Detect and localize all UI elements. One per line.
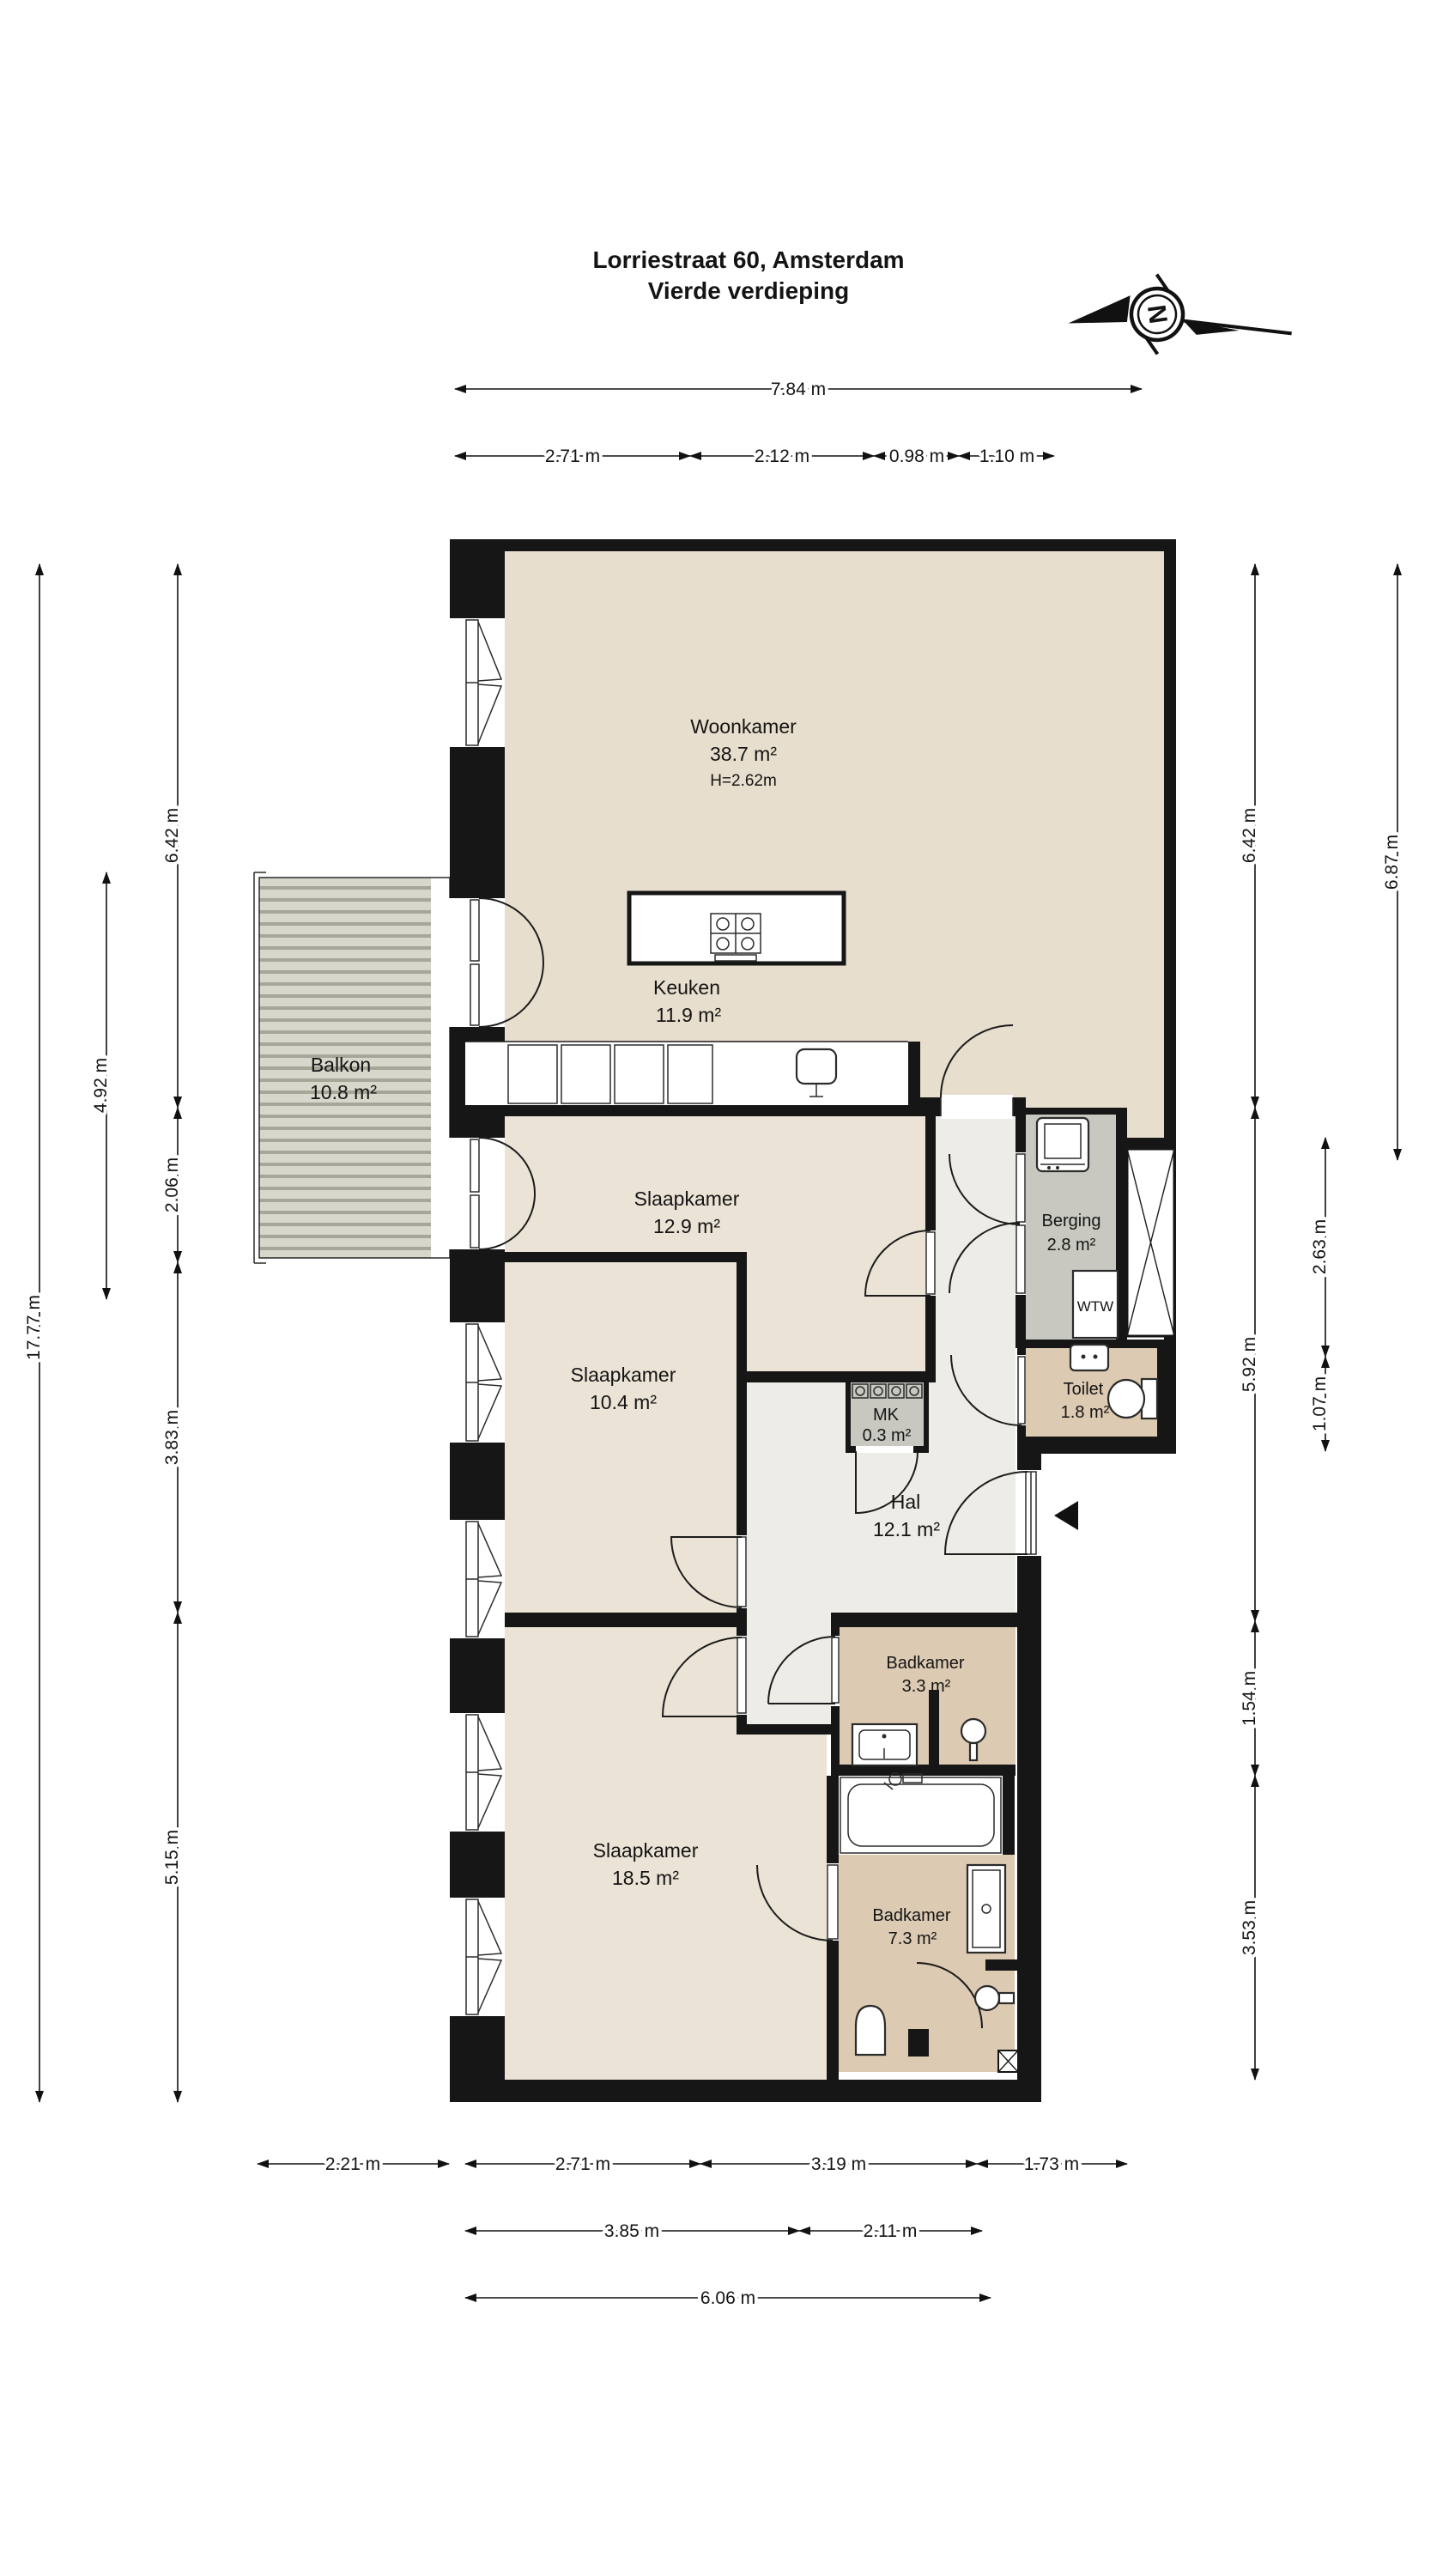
shaft-x-small [998, 2050, 1018, 2072]
dim-right-inner: 2.63 m 1.07 m [1310, 1138, 1330, 1451]
dim-left-balkon: 4.92 m [91, 872, 111, 1299]
room-label-hal: Hal [891, 1491, 921, 1513]
room-woonkamer-floor-east [1116, 551, 1164, 1149]
room-height-woonkamer: H=2.62m [710, 772, 777, 790]
room-label-badkamer2: Badkamer [872, 1906, 950, 1925]
dim-left-total: 17.77 m [24, 564, 44, 2102]
floorplan-page: Lorriestraat 60, Amsterdam Vierde verdie… [0, 0, 1449, 2576]
toilet-sink-icon [1070, 1345, 1108, 1370]
dim-top-chain: 2.71 m 2.12 m 0.98 m 1.10 m [455, 447, 1054, 466]
dim-right-chain: 6.42 m 5.92 m 1.54 m 3.53 m [1240, 564, 1259, 2080]
room-slaapkamer3-floor-leg [737, 1735, 827, 2080]
dim-label: 6.06 m [700, 2288, 755, 2308]
dim-label: 7.84 m [771, 380, 826, 399]
dim-label: 3.85 m [604, 2221, 659, 2241]
page-subtitle: Vierde verdieping [648, 277, 849, 304]
room-label-keuken: Keuken [653, 976, 720, 999]
dim-label: 1.10 m [979, 447, 1034, 466]
floor-plan-svg: Lorriestraat 60, Amsterdam Vierde verdie… [0, 0, 1449, 2576]
room-area-hal: 12.1 m² [873, 1518, 940, 1540]
room-label-slaapkamer1: Slaapkamer [634, 1188, 740, 1210]
dim-label: 17.77 m [24, 1295, 44, 1360]
dim-left-chain: 6.42 m 2.06 m 3.83 m 5.15 m [162, 564, 182, 2102]
dim-label: 2.21 m [325, 2154, 380, 2174]
dim-label: 1.73 m [1024, 2154, 1079, 2174]
dim-label: 2.06 m [162, 1157, 182, 1212]
vanity-sink-icon [852, 1724, 917, 1765]
dim-label: 2.63 m [1310, 1219, 1330, 1274]
room-area-balkon: 10.8 m² [310, 1081, 377, 1103]
shower-tray-icon [967, 1865, 1005, 1953]
room-label-badkamer1: Badkamer [886, 1654, 964, 1673]
window-icon [448, 1898, 505, 2016]
room-area-badkamer1: 3.3 m² [902, 1677, 951, 1696]
dim-label: 2.12 m [755, 447, 809, 466]
room-label-slaapkamer2: Slaapkamer [571, 1364, 676, 1386]
window-icon [448, 618, 505, 747]
dim-label: 6.87 m [1382, 835, 1402, 890]
dim-bottom-row3: 6.06 m [465, 2288, 991, 2308]
window-icon [448, 1520, 505, 1638]
dim-top-total: 7.84 m [455, 380, 1142, 399]
toilet-icon [856, 2006, 885, 2055]
dim-label: 2.11 m [864, 2221, 918, 2241]
page-title: Lorriestraat 60, Amsterdam [592, 246, 904, 273]
compass-icon: N [1064, 257, 1292, 366]
room-area-toilet: 1.8 m² [1061, 1403, 1110, 1422]
room-floors [465, 551, 1164, 2080]
dim-right-outer: 6.87 m [1382, 564, 1402, 1160]
dim-label: 1.54 m [1240, 1671, 1259, 1726]
dim-label: 6.42 m [1240, 808, 1259, 863]
room-label-toilet: Toilet [1064, 1380, 1104, 1399]
entrance-arrow-icon [1054, 1501, 1078, 1530]
dim-label: 5.92 m [1240, 1337, 1259, 1392]
room-label-balkon: Balkon [311, 1054, 371, 1076]
dim-label: 2.71 m [545, 447, 600, 466]
shaft-x [1127, 1149, 1174, 1336]
room-area-keuken: 11.9 m² [656, 1004, 722, 1026]
dim-label: 0.98 m [889, 447, 944, 466]
dim-label: 2.71 m [555, 2154, 610, 2174]
dim-label: 5.15 m [162, 1830, 182, 1885]
room-area-slaapkamer1: 12.9 m² [653, 1215, 720, 1237]
washer-icon [1037, 1118, 1088, 1171]
room-slaapkamer2-floor [465, 1262, 737, 1613]
room-woonkamer-floor [465, 551, 1164, 1116]
room-label-berging: Berging [1042, 1212, 1101, 1230]
room-area-slaapkamer2: 10.4 m² [590, 1391, 657, 1413]
dim-bottom-row2: 3.85 m 2.11 m [465, 2221, 982, 2241]
dim-label: 3.83 m [162, 1410, 182, 1465]
bath-zone [839, 1776, 1003, 1855]
room-area-slaapkamer3: 18.5 m² [612, 1867, 679, 1889]
window-icon [448, 1713, 505, 1832]
dim-label: 3.53 m [1240, 1900, 1259, 1955]
window-icon [448, 1322, 505, 1443]
room-label-mk: MK [873, 1406, 900, 1425]
dim-label: 3.19 m [811, 2154, 866, 2174]
room-area-badkamer2: 7.3 m² [888, 1929, 937, 1948]
toilet-icon [1108, 1379, 1157, 1419]
dim-label: 1.07 m [1310, 1376, 1330, 1431]
dim-label: 6.42 m [162, 808, 182, 863]
room-hal-stub-floor [747, 1613, 831, 1735]
room-slaapkamer1-floor-leg [747, 1252, 925, 1371]
wtw-label: WTW [1077, 1298, 1113, 1315]
room-label-slaapkamer3: Slaapkamer [593, 1839, 699, 1862]
room-area-woonkamer: 38.7 m² [710, 743, 777, 765]
room-area-mk: 0.3 m² [863, 1426, 912, 1445]
compass-north-label: N [1143, 303, 1173, 325]
dim-bottom-row1: 2.21 m 2.71 m 3.19 m 1.73 m [258, 2154, 1127, 2174]
room-area-berging: 2.8 m² [1047, 1236, 1096, 1255]
room-label-woonkamer: Woonkamer [690, 715, 797, 738]
kitchen-counter [465, 1042, 908, 1105]
dim-label: 4.92 m [91, 1058, 111, 1113]
